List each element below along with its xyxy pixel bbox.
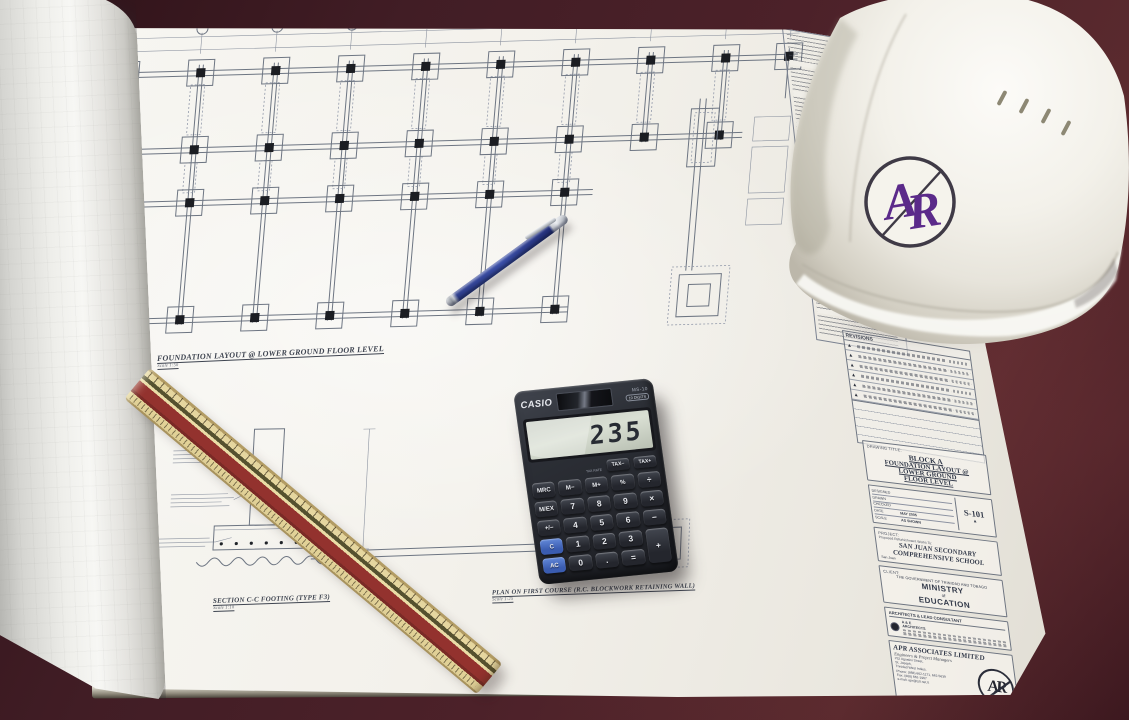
- revision-delta-icon: ▲: [972, 518, 977, 523]
- calc-key-7[interactable]: 7: [560, 498, 585, 515]
- calc-key-−[interactable]: −: [642, 508, 667, 525]
- calc-key-×[interactable]: ×: [639, 490, 664, 507]
- title-block: DRAWING TITLE: BLOCK A FOUNDATION LAYOUT…: [862, 440, 1021, 718]
- digits-badge: 10 DIGITS: [625, 393, 649, 402]
- display-bezel: 235: [523, 407, 657, 463]
- calc-keypad: MRCM−M+%÷M/EX789×+/−456−C123+AC0.=: [531, 471, 672, 574]
- calc-key-C[interactable]: C: [539, 538, 564, 555]
- revision-delta-icon: ▲: [852, 381, 861, 388]
- solar-panel: [556, 387, 614, 410]
- calc-key-AC[interactable]: AC: [542, 557, 567, 574]
- calc-key-MRC[interactable]: MRC: [531, 481, 556, 498]
- revision-delta-icon: ▲: [853, 391, 862, 398]
- tax-rate-label: TAX RATE: [586, 468, 602, 473]
- calc-key-TAX+[interactable]: TAX+: [633, 455, 657, 469]
- lcd-screen: 235: [526, 410, 654, 460]
- scale-label: SCALE: [875, 515, 902, 522]
- calc-key-M/EX[interactable]: M/EX: [534, 500, 559, 517]
- consultant-logo-icon: [890, 622, 900, 632]
- calc-key-9[interactable]: 9: [613, 492, 638, 509]
- calc-key-.[interactable]: .: [595, 551, 620, 568]
- calculator-brand: CASIO: [520, 397, 553, 411]
- display-value: 235: [590, 416, 644, 451]
- calc-key-+[interactable]: +: [645, 527, 672, 563]
- calc-key-M−[interactable]: M−: [558, 479, 583, 496]
- calculator[interactable]: CASIO MS-10 10 DIGITS 235 TAX RATE TAX−T…: [513, 378, 679, 585]
- calc-key-1[interactable]: 1: [566, 535, 591, 552]
- construction-desk-scene: FOUNDATION LAYOUT @ LOWER GROUND FLOOR L…: [0, 0, 1129, 720]
- hard-hat[interactable]: A R: [778, 0, 1129, 368]
- calc-key-÷[interactable]: ÷: [637, 471, 662, 488]
- calc-key-+/−[interactable]: +/−: [537, 519, 562, 536]
- section-caption: SECTION C-C FOOTING (TYPE F3) Scale 1:10: [213, 593, 330, 610]
- calc-key-4[interactable]: 4: [563, 516, 588, 533]
- calc-key-0[interactable]: 0: [568, 554, 593, 571]
- calc-key-2[interactable]: 2: [592, 533, 617, 550]
- calc-key-8[interactable]: 8: [587, 495, 612, 512]
- calc-key-6[interactable]: 6: [616, 511, 641, 528]
- calc-key-3[interactable]: 3: [618, 530, 643, 547]
- calc-key-%[interactable]: %: [610, 473, 635, 490]
- revision-delta-icon: ▲: [851, 372, 860, 379]
- calc-key-M+[interactable]: M+: [584, 476, 609, 493]
- calc-key-5[interactable]: 5: [589, 514, 614, 531]
- foundation-plan-drawing: [60, 6, 812, 358]
- calc-key-TAX−[interactable]: TAX−: [606, 458, 630, 472]
- calc-key-=[interactable]: =: [621, 549, 646, 566]
